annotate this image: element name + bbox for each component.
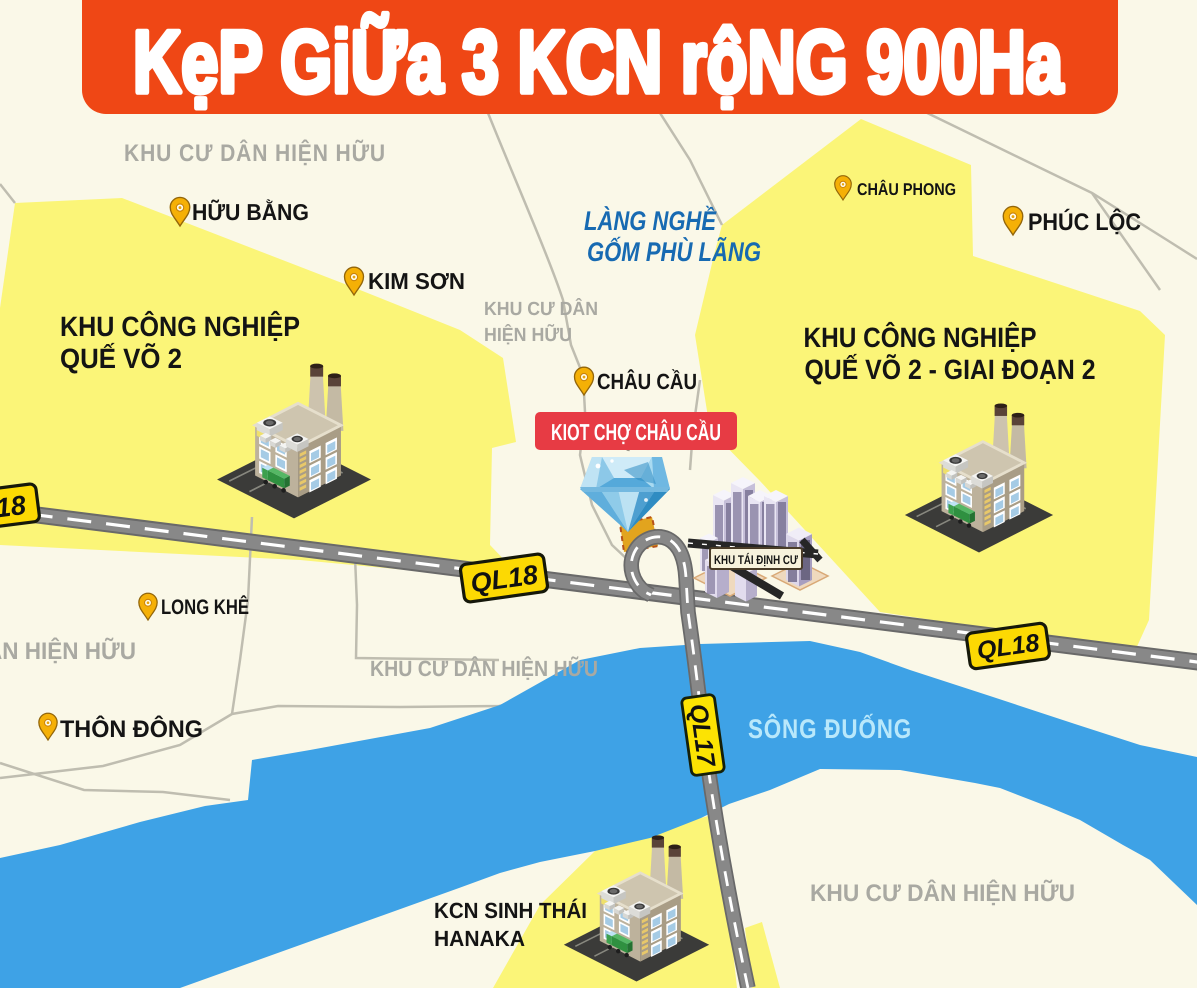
svg-text:KHU CƯ DÂN HIỆN HỮU: KHU CƯ DÂN HIỆN HỮU — [124, 139, 386, 167]
svg-text:HỮU BẰNG: HỮU BẰNG — [192, 199, 309, 225]
svg-text:KCN SINH THÁI: KCN SINH THÁI — [434, 898, 587, 923]
svg-text:THÔN ĐÔNG: THÔN ĐÔNG — [60, 715, 203, 743]
svg-text:HIỆN HỮU: HIỆN HỮU — [484, 323, 572, 346]
svg-text:KẹP GiỮa 3 KCN rộNG 900Ha: KẹP GiỮa 3 KCN rộNG 900Ha — [133, 12, 1064, 111]
svg-text:GỐM PHÙ LÃNG: GỐM PHÙ LÃNG — [587, 236, 761, 267]
svg-text:KHU CƯ DÂN HIỆN HỮU: KHU CƯ DÂN HIỆN HỮU — [810, 879, 1075, 907]
svg-text:KIM SƠN: KIM SƠN — [368, 268, 465, 294]
svg-text:CHÂU CẦU: CHÂU CẦU — [597, 369, 697, 394]
svg-text:QUẾ VÕ 2 - GIAI ĐOẠN 2: QUẾ VÕ 2 - GIAI ĐOẠN 2 — [805, 353, 1096, 385]
svg-text:QUẾ VÕ 2: QUẾ VÕ 2 — [60, 342, 182, 374]
svg-text:ÂN HIỆN HỮU: ÂN HIỆN HỮU — [0, 637, 136, 665]
svg-text:KHU TÁI ĐỊNH CƯ: KHU TÁI ĐỊNH CƯ — [714, 552, 798, 567]
svg-text:PHÚC LỘC: PHÚC LỘC — [1028, 208, 1141, 236]
svg-text:KIOT CHỢ CHÂU CẦU: KIOT CHỢ CHÂU CẦU — [551, 419, 721, 445]
svg-text:LÀNG NGHỀ: LÀNG NGHỀ — [584, 205, 717, 236]
svg-text:KHU CƯ DÂN HIỆN HỮU: KHU CƯ DÂN HIỆN HỮU — [370, 656, 598, 681]
svg-text:KHU CÔNG NGHIỆP: KHU CÔNG NGHIỆP — [804, 321, 1037, 353]
svg-text:KHU CƯ DÂN: KHU CƯ DÂN — [484, 297, 598, 320]
svg-text:CHÂU PHONG: CHÂU PHONG — [857, 179, 956, 199]
svg-text:HANAKA: HANAKA — [434, 926, 525, 951]
svg-text:SÔNG ĐUỐNG: SÔNG ĐUỐNG — [748, 713, 912, 744]
svg-text:LONG KHÊ: LONG KHÊ — [161, 595, 249, 619]
svg-text:KHU CÔNG NGHIỆP: KHU CÔNG NGHIỆP — [60, 310, 300, 342]
